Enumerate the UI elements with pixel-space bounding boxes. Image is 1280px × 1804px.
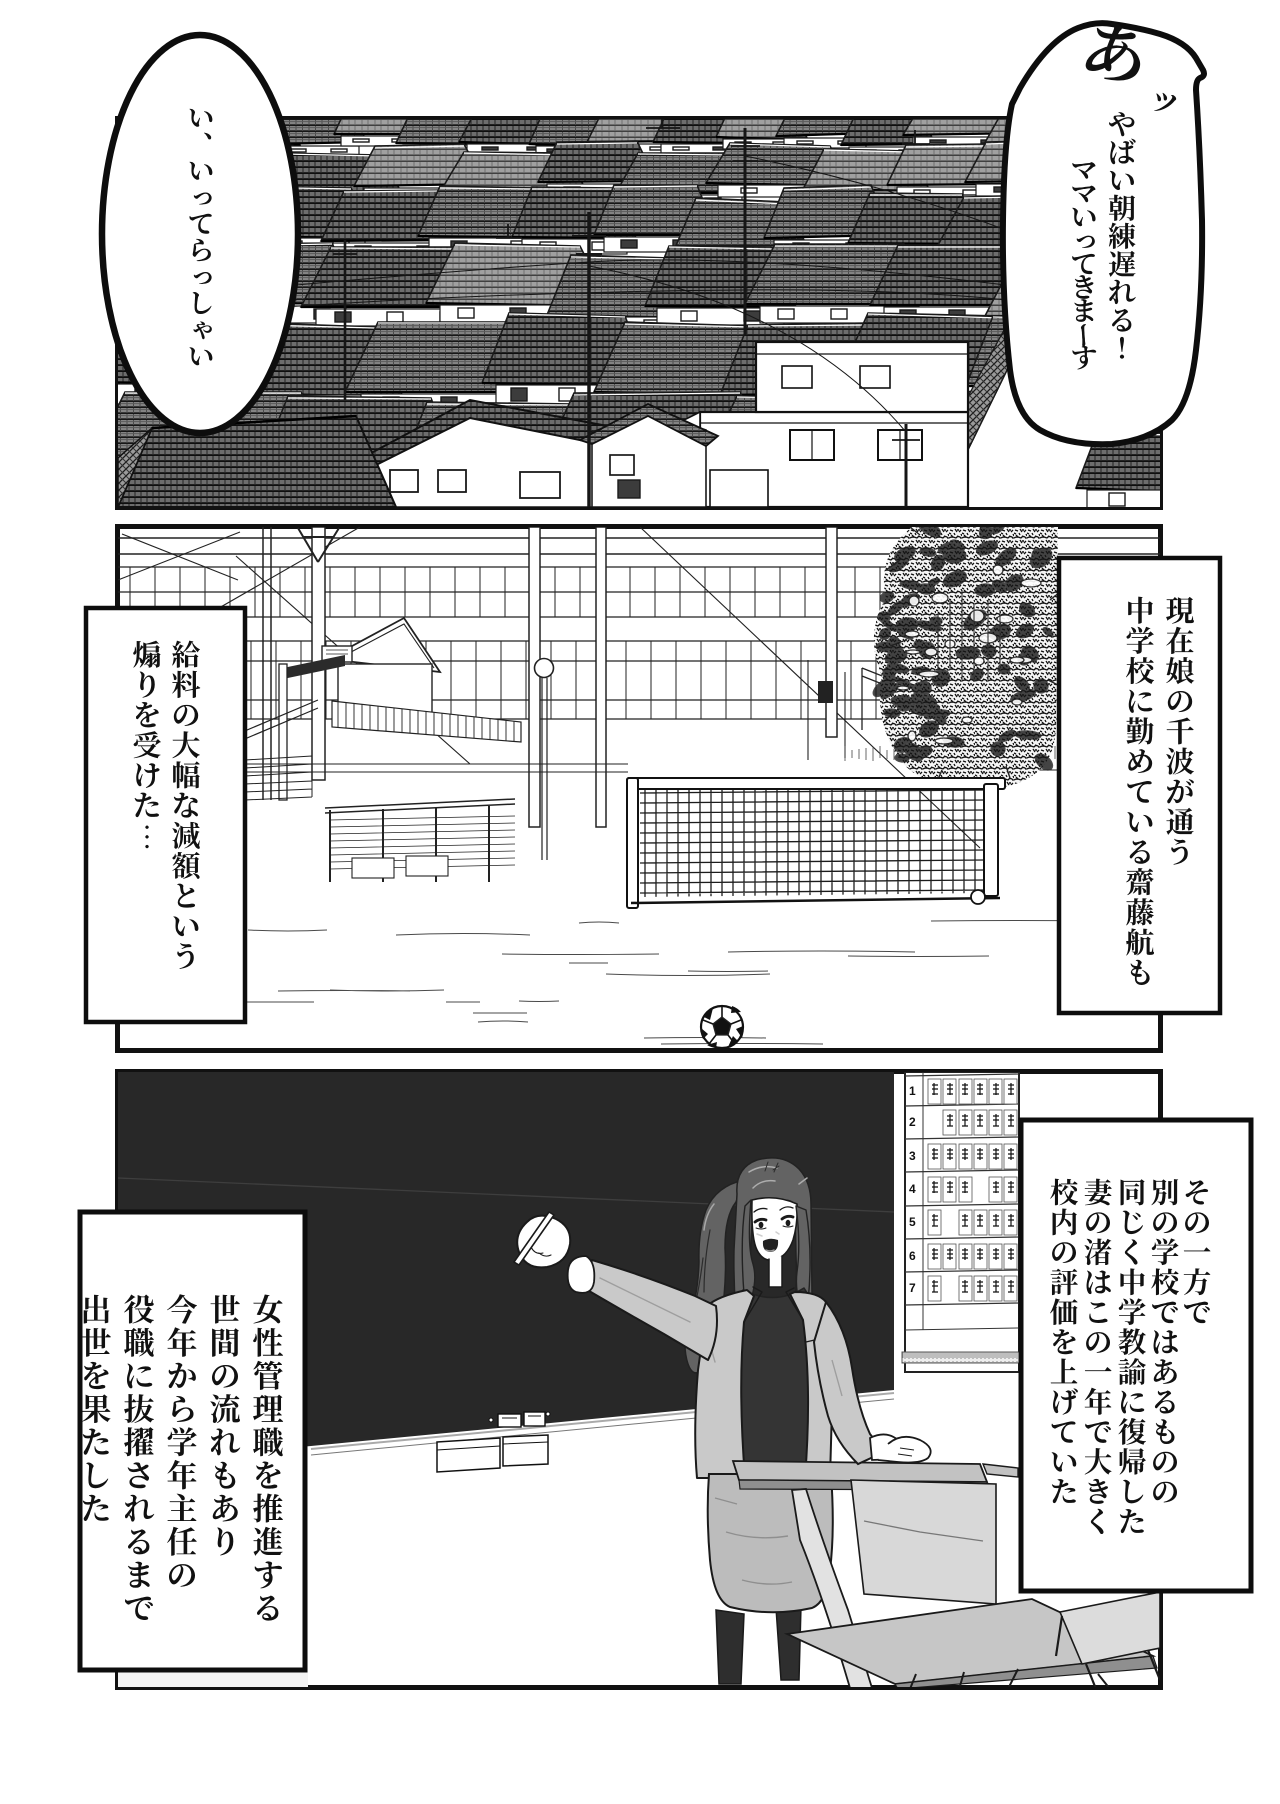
svg-text:5: 5: [909, 1215, 916, 1229]
svg-text:6: 6: [909, 1249, 916, 1263]
svg-text:2: 2: [909, 1115, 916, 1129]
svg-text:7: 7: [909, 1281, 916, 1295]
svg-text:1: 1: [909, 1084, 916, 1098]
svg-text:3: 3: [909, 1149, 916, 1163]
svg-text:4: 4: [909, 1182, 916, 1196]
